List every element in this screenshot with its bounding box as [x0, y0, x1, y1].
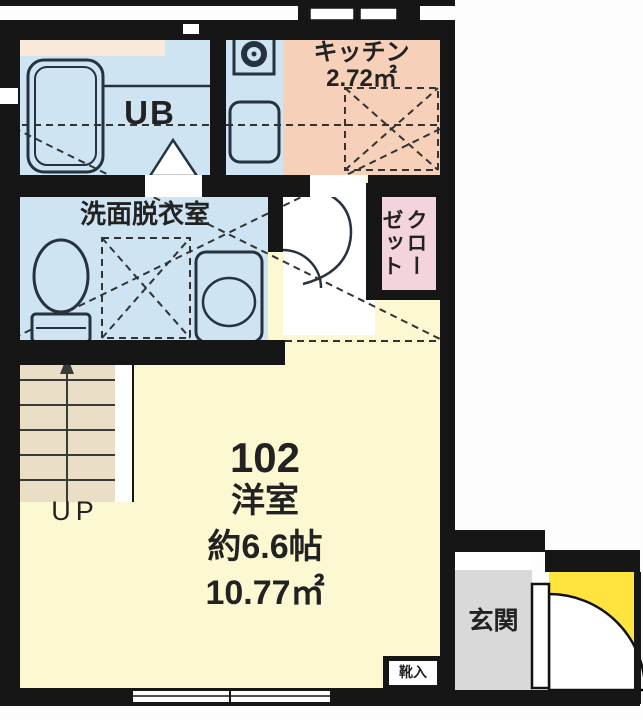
left-wall-vent	[0, 88, 18, 104]
room-type-label: 洋室	[140, 484, 390, 520]
entrance-top-wall	[440, 530, 545, 552]
kitchen-area-label: 2.72㎡	[283, 66, 440, 91]
right-outline	[634, 572, 641, 704]
room-size-label: 約6.6帖	[140, 530, 390, 566]
floor-plan-drawing	[0, 0, 643, 720]
unit-bath-label: UB	[105, 96, 195, 131]
mid-wall-1	[10, 175, 145, 197]
kitchen-window-pane-2	[360, 8, 397, 20]
exterior-top-wall	[545, 550, 640, 572]
entrance-bottom-wall	[445, 690, 640, 706]
top-wall-vent	[183, 24, 199, 34]
shoe-cabinet-label: 靴入	[389, 665, 437, 680]
entrance-label: 玄関	[455, 608, 532, 634]
bath-counter-ledge	[20, 40, 165, 56]
hall-left-wall	[268, 197, 283, 252]
washroom-label: 洗面脱衣室	[25, 201, 265, 228]
kitchen-hall-opening	[310, 175, 366, 197]
room-number-label: 102	[140, 436, 390, 480]
hall-floor	[283, 197, 375, 335]
mid-wall-2	[202, 175, 310, 197]
closet-label-col-left: ゼット	[380, 196, 402, 291]
kitchen-window-pane-1	[310, 8, 354, 20]
room-area-label: 10.77㎡	[140, 576, 390, 612]
kitchen-label: キッチン	[283, 40, 440, 65]
stairs-side-wall	[115, 355, 133, 502]
right-wall	[440, 20, 455, 695]
washroom-bottom-wall	[10, 340, 285, 365]
closet-label-col-right: クロー	[404, 196, 426, 291]
bath-kitchen-wall	[210, 20, 226, 178]
stairs-up-label: UP	[38, 497, 112, 525]
bath-door-opening	[145, 175, 202, 197]
mid-wall-3	[368, 175, 443, 197]
stove-burner-dot	[252, 52, 257, 57]
floor-plan: キッチン 2.72㎡ UB 洗面脱衣室 クロー ゼット 102 洋室 約6.6帖…	[0, 0, 643, 720]
entrance-step	[455, 552, 532, 570]
entrance-door-leaf	[532, 584, 549, 688]
